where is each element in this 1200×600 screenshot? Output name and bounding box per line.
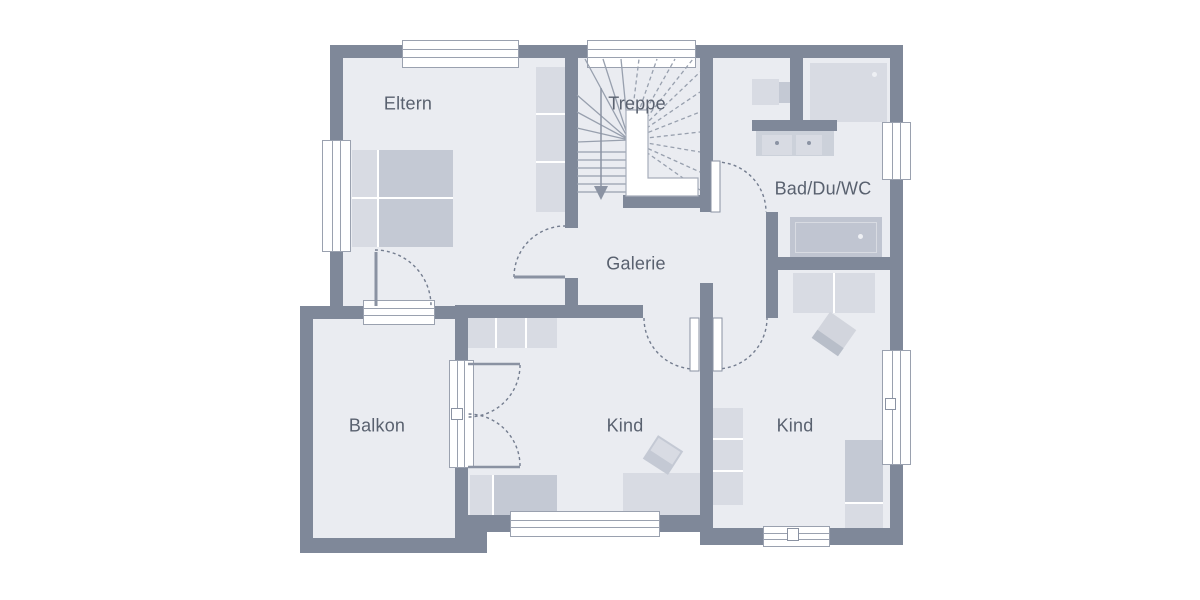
wall-bad-bottom	[766, 257, 903, 270]
washbasin	[796, 135, 822, 155]
bed-mattress	[379, 199, 453, 247]
wall-balkon-left	[300, 306, 313, 553]
faucet	[807, 141, 811, 145]
wall-eltern-treppe	[565, 58, 578, 228]
bed-pillow	[352, 150, 377, 197]
kind1-bed	[470, 475, 557, 515]
room-label-bad: Bad/Du/WC	[775, 179, 872, 200]
bathtub	[790, 217, 882, 258]
wall-eltern-stub	[565, 278, 578, 306]
window-bad-right	[882, 122, 911, 180]
window-kind1-bottom	[510, 511, 660, 537]
room-label-kind-2: Kind	[777, 416, 814, 437]
room-label-galerie: Galerie	[606, 254, 665, 275]
window-handle	[885, 398, 896, 410]
kind1-wardrobe	[468, 317, 557, 348]
bed-mattress	[379, 150, 453, 197]
room-label-treppe: Treppe	[608, 94, 666, 115]
kind1-desk	[623, 473, 700, 515]
toilet-tank	[779, 82, 790, 103]
faucet	[775, 141, 779, 145]
wall-kind1-kind2	[700, 283, 713, 532]
bed-mattress	[494, 475, 557, 515]
wall-treppe-bottom	[623, 195, 700, 208]
kind2-wardrobe-top	[793, 273, 875, 313]
wall-treppe-bad	[700, 58, 713, 212]
window-handle	[787, 528, 799, 541]
door-handle	[451, 408, 463, 420]
door-eltern-balkon	[363, 300, 435, 325]
window-eltern-left	[322, 140, 351, 252]
wall-right	[890, 45, 903, 545]
wall-vanity	[752, 120, 837, 131]
room-label-balkon: Balkon	[349, 416, 405, 437]
shower-tray	[810, 63, 887, 122]
window-treppe-top	[587, 40, 696, 68]
parents-wardrobe	[536, 67, 566, 212]
bed-pillow	[352, 199, 377, 247]
bed-pillow	[470, 475, 492, 515]
bed-mattress	[845, 440, 883, 502]
wall-bad-partition	[790, 58, 803, 122]
floor-plan: Eltern Treppe Bad/Du/WC Galerie Kind Kin…	[0, 0, 1200, 600]
room-label-kind-1: Kind	[607, 416, 644, 437]
shower-drain	[872, 72, 877, 77]
kind2-bed	[845, 440, 883, 532]
wall-galerie-kind1	[455, 305, 643, 318]
kind2-wardrobe-left	[712, 408, 743, 505]
toilet	[752, 79, 779, 105]
window-eltern-top	[402, 40, 519, 68]
room-label-eltern: Eltern	[384, 94, 432, 115]
parents-double-bed	[352, 150, 453, 247]
tub-drain	[858, 234, 863, 239]
washbasin	[762, 135, 792, 155]
